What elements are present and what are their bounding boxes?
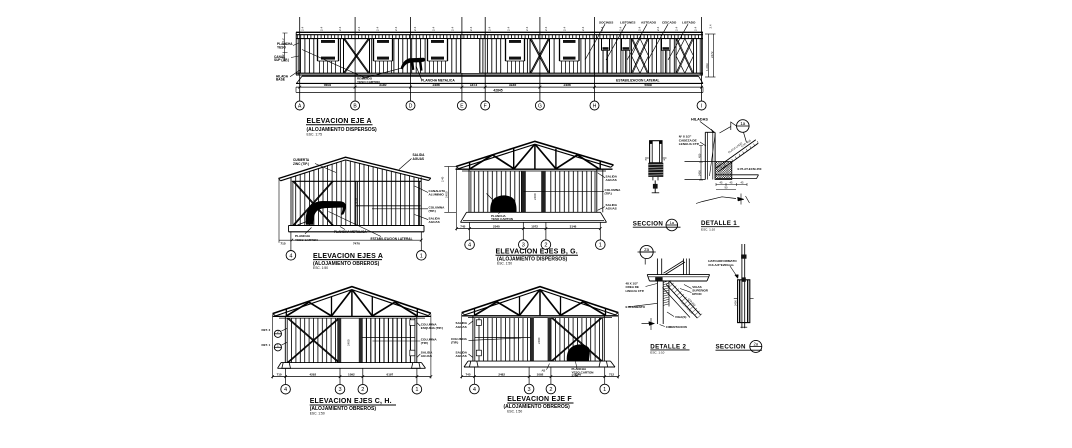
svg-text:1873: 1873 [470,83,478,87]
svg-text:2: 2 [549,387,552,393]
svg-text:3185: 3185 [509,83,517,87]
svg-text:2.4: 2.4 [506,26,510,31]
svg-text:2.4: 2.4 [544,26,548,31]
svg-text:2456: 2456 [564,83,572,87]
svg-text:DETALLE 1: DETALLE 1 [701,220,737,227]
svg-text:2482: 2482 [498,372,505,376]
svg-text:7470: 7470 [353,241,360,245]
svg-text:6197: 6197 [387,372,394,376]
svg-text:2a: 2a [644,247,650,252]
svg-text:2.4: 2.4 [709,24,713,28]
svg-text:2472: 2472 [710,51,714,58]
svg-text:DET. 2: DET. 2 [262,328,271,332]
svg-text:2a: 2a [753,342,758,347]
svg-text:AGUAS: AGUAS [606,207,617,211]
svg-text:2.4: 2.4 [432,26,436,31]
svg-text:AB: AB [542,368,546,372]
svg-text:SUP (TIP.): SUP (TIP.) [274,58,289,62]
svg-text:712: 712 [609,372,614,376]
svg-text:1: 1 [603,387,606,393]
svg-text:AGUAS: AGUAS [456,354,467,358]
svg-text:ESC. 1:50: ESC. 1:50 [310,411,325,415]
svg-text:D: D [409,103,413,109]
svg-text:PLANCHA METALICA: PLANCHA METALICA [334,230,367,234]
svg-text:3146: 3146 [570,224,577,228]
svg-text:YESO CARTON: YESO CARTON [357,80,380,84]
svg-text:2540: 2540 [493,224,500,228]
svg-text:3: 3 [528,387,531,393]
svg-text:AGUAS: AGUAS [606,178,617,182]
svg-text:2.4: 2.4 [301,26,305,31]
svg-text:ELEVACION EJES B, G.: ELEVACION EJES B, G. [496,248,578,255]
svg-text:2.4: 2.4 [450,26,454,31]
svg-text:1a: 1a [740,121,745,126]
svg-text:(TIP.): (TIP.) [605,191,612,195]
svg-text:I: I [701,103,702,109]
svg-text:2.4: 2.4 [637,26,641,31]
svg-text:42845: 42845 [493,88,502,92]
svg-text:(TIP.): (TIP.) [429,209,436,213]
svg-text:2400: 2400 [537,337,541,344]
svg-text:2.4: 2.4 [469,26,473,31]
svg-text:(TIP.): (TIP.) [451,340,458,344]
svg-text:LISTONES: LISTONES [620,20,635,24]
svg-text:AGUAS: AGUAS [421,354,432,358]
svg-text:EPOXI: EPOXI [692,292,701,296]
svg-text:4292: 4292 [309,372,316,376]
svg-text:1092: 1092 [348,372,355,376]
svg-text:ELEVACION EJE F: ELEVACION EJE F [507,396,572,403]
svg-text:1: 1 [599,243,602,249]
svg-text:1a: 1a [670,220,675,225]
svg-text:AGUAS: AGUAS [413,157,425,161]
svg-text:1: 1 [420,253,423,259]
svg-text:2.4: 2.4 [619,26,623,31]
svg-text:2400: 2400 [347,339,351,346]
svg-text:SECCION: SECCION [716,343,747,350]
svg-text:2.4: 2.4 [693,26,697,31]
svg-text:BASE: BASE [276,78,285,82]
svg-text:YESO CARTON: YESO CARTON [491,217,513,221]
svg-text:4: 4 [284,387,287,393]
svg-text:2.4: 2.4 [525,26,529,31]
svg-text:2.4: 2.4 [675,26,679,31]
svg-text:ASTEADO: ASTEADO [641,20,657,24]
svg-text:LISTADO: LISTADO [682,20,696,24]
svg-text:DETALLE 2: DETALLE 2 [650,343,686,350]
svg-text:2.40: 2.40 [441,176,445,182]
svg-text:ESC. 1:50: ESC. 1:50 [497,262,512,266]
svg-text:715: 715 [280,241,285,245]
svg-text:E PLAT-ECM-450: E PLAT-ECM-450 [738,167,762,171]
svg-text:1: 1 [277,344,279,348]
svg-text:ESC. 1:50: ESC. 1:50 [313,266,328,270]
svg-text:2: 2 [277,330,279,334]
svg-text:(TIP.): (TIP.) [421,341,428,345]
svg-text:ESC. 1:50: ESC. 1:50 [507,409,522,413]
svg-text:2.4: 2.4 [488,26,492,31]
svg-text:ESQUINA (TIP.): ESQUINA (TIP.) [421,326,443,330]
svg-text:H: H [593,103,597,109]
svg-text:3180: 3180 [379,83,387,87]
svg-text:2.4: 2.4 [563,26,567,31]
svg-text:DET. 1: DET. 1 [262,343,271,347]
svg-text:2.4: 2.4 [581,26,585,31]
svg-text:2456: 2456 [433,83,441,87]
svg-text:SOCINOS: SOCINOS [599,20,613,24]
svg-text:ELEVACION EJES C, H.: ELEVACION EJES C, H. [310,398,392,405]
svg-text:9588: 9588 [644,83,652,87]
svg-text:ESC. 1:10: ESC. 1:10 [701,227,715,231]
svg-text:YESO CARTON: YESO CARTON [295,238,318,242]
svg-text:2.4: 2.4 [357,26,361,31]
svg-text:2.4: 2.4 [413,26,417,31]
svg-text:LINGUA CTP.: LINGUA CTP. [626,289,645,293]
svg-text:YESO: YESO [277,45,286,49]
svg-text:2.4: 2.4 [376,26,380,31]
svg-text:ESC. 1:10: ESC. 1:10 [650,351,664,355]
svg-text:1092: 1092 [537,372,544,376]
svg-text:AGUAS: AGUAS [429,220,440,224]
svg-text:2.4: 2.4 [656,26,660,31]
svg-text:F: F [484,103,487,109]
svg-text:ZINC (TIP.): ZINC (TIP.) [293,162,309,166]
svg-text:2.4: 2.4 [338,26,342,31]
svg-text:4: 4 [468,243,471,249]
svg-text:SECCION: SECCION [633,220,664,227]
svg-text:1.20m: 1.20m [705,62,709,71]
svg-text:4: 4 [289,253,292,259]
svg-text:VIGA(S): VIGA(S) [675,315,686,319]
svg-text:G: G [538,103,542,109]
svg-text:2700: 2700 [572,374,579,378]
svg-text:2: 2 [361,387,364,393]
svg-text:2400: 2400 [697,170,701,176]
svg-text:AGUAS: AGUAS [456,325,467,329]
svg-text:2400: 2400 [445,191,449,198]
svg-text:745: 745 [465,372,470,376]
svg-text:LENGUA CTP.: LENGUA CTP. [679,142,700,146]
svg-text:ESC. 1:75: ESC. 1:75 [307,132,323,136]
svg-text:CEICADO: CEICADO [662,20,677,24]
svg-text:2.40: 2.40 [354,197,358,203]
svg-text:4: 4 [473,387,476,393]
svg-text:1: 1 [415,387,418,393]
svg-text:ALUMINIO: ALUMINIO [429,193,445,197]
svg-text:2.4: 2.4 [394,26,398,31]
svg-text:ELEVACION EJES A: ELEVACION EJES A [313,253,383,260]
svg-text:2.4: 2.4 [319,26,323,31]
svg-text:1072: 1072 [531,224,538,228]
svg-text:745: 745 [460,224,465,228]
svg-text:PLANCHA METALICA: PLANCHA METALICA [421,79,455,83]
svg-text:710: 710 [277,372,282,376]
svg-text:CIMENTACION: CIMENTACION [666,325,687,329]
svg-text:ESTABILIZACION LATERAL: ESTABILIZACION LATERAL [616,78,659,82]
svg-text:2400: 2400 [734,300,738,306]
svg-text:3: 3 [338,387,341,393]
svg-text:ELEVACION EJE A: ELEVACION EJE A [307,118,372,125]
svg-text:2400: 2400 [533,193,537,200]
svg-text:450: 450 [697,153,701,158]
svg-text:HILADAS: HILADAS [691,117,708,121]
svg-text:9408: 9408 [324,83,332,87]
